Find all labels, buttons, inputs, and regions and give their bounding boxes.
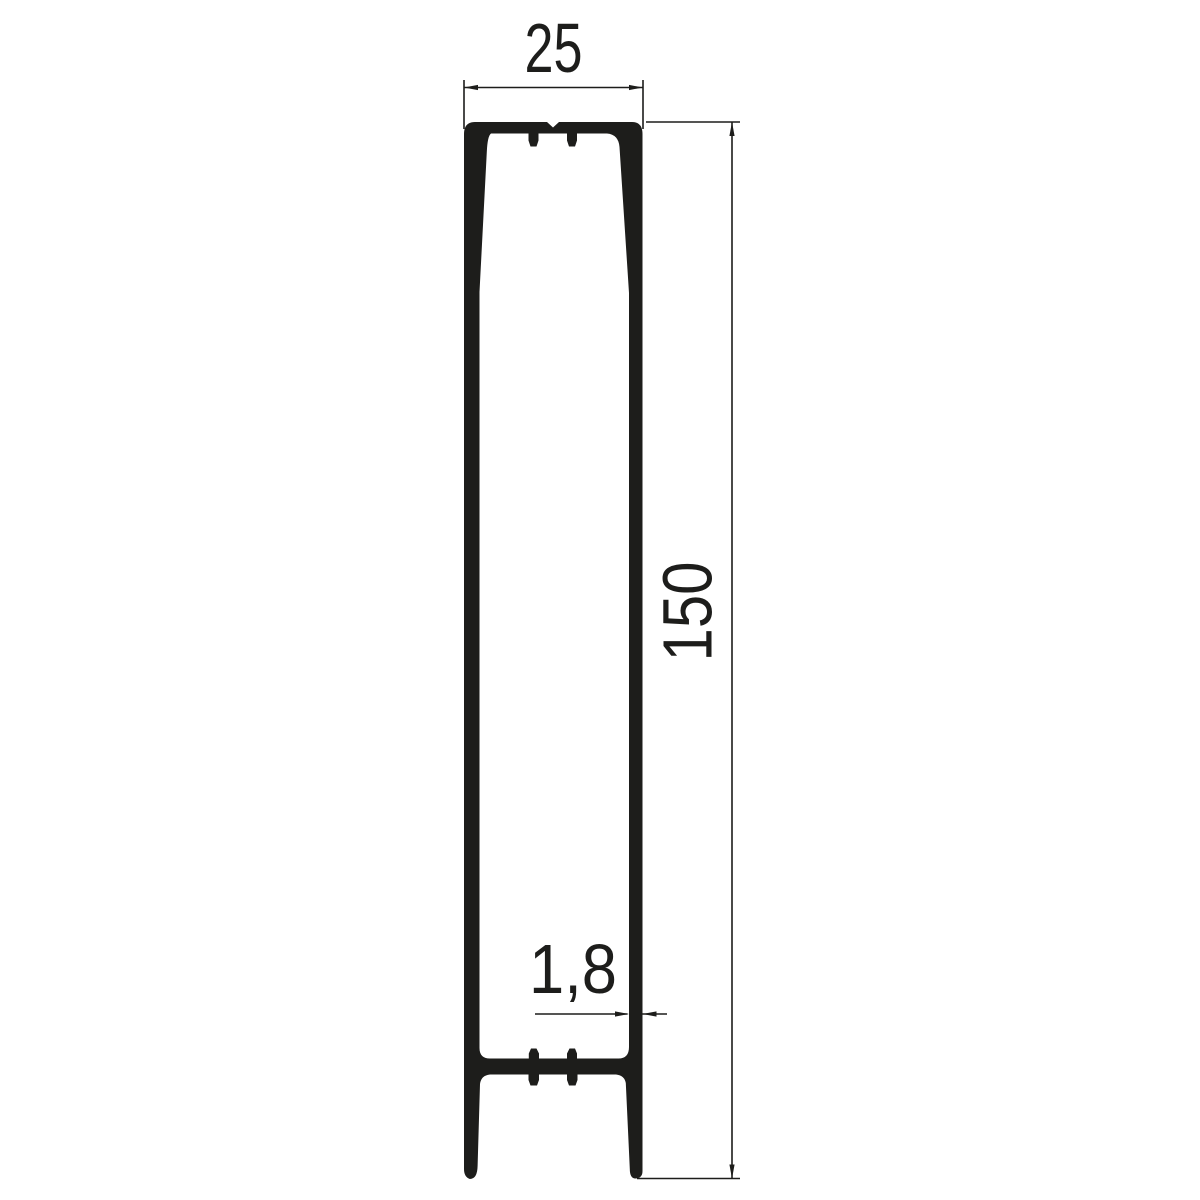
drawing-canvas: 25 150 1,8	[0, 0, 1200, 1200]
width-dimension-label: 25	[525, 9, 583, 87]
height-dimension: 150	[637, 122, 740, 1179]
arrow-right-icon	[629, 85, 643, 90]
arrow-down-icon	[729, 1165, 734, 1179]
height-dimension-label: 150	[649, 562, 727, 662]
thickness-dimension: 1,8	[529, 930, 667, 1017]
arrow-up-icon	[729, 122, 734, 136]
arrow-left-icon	[464, 85, 478, 90]
technical-drawing: 25 150 1,8	[0, 0, 1200, 1200]
arrow-right-icon	[615, 1011, 629, 1016]
profile-outline	[464, 122, 643, 1179]
arrow-left-icon	[643, 1011, 657, 1016]
thickness-dimension-label: 1,8	[529, 930, 617, 1008]
profile-cross-section	[464, 122, 643, 1179]
width-dimension: 25	[464, 9, 643, 129]
